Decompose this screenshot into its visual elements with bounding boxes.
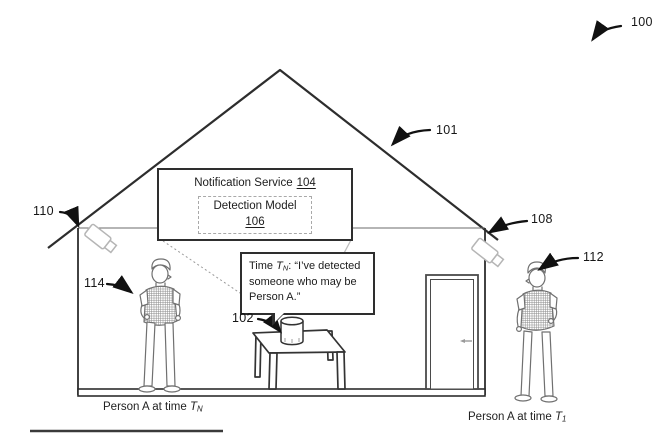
bubble-time-var: T	[276, 260, 283, 272]
arrow-108	[490, 221, 527, 232]
ref-label-112: 112	[583, 250, 604, 264]
ref-104: 104	[297, 177, 316, 189]
notification-service-text: Notification Service	[194, 177, 292, 189]
arrow-101	[393, 130, 430, 144]
speech-bubble-tail-fill	[275, 313, 284, 322]
caption-person-a-t1: Person A at time T1	[468, 411, 566, 423]
caption-left-var: T	[190, 401, 197, 413]
ref-label-101: 101	[436, 123, 458, 137]
notification-service-label: Notification Service104	[159, 177, 351, 189]
ref-label-102: 102	[232, 311, 254, 325]
detection-model-text: Detection Model	[199, 199, 311, 215]
ref-label-108: 108	[531, 212, 553, 226]
detection-model-box: Detection Model 106	[198, 196, 312, 234]
bubble-text: Time	[249, 260, 276, 272]
arrow-110	[60, 212, 78, 225]
patent-figure: Notification Service104 Detection Model …	[0, 0, 662, 436]
speech-bubble: Time TN: “I’ve detected someone who may …	[240, 252, 375, 315]
caption-person-a-tn: Person A at time TN	[103, 401, 203, 413]
door	[426, 275, 478, 389]
vest	[521, 290, 554, 330]
arrow-114	[107, 284, 131, 292]
person-inside	[139, 259, 180, 392]
caption-left-sub: N	[197, 404, 203, 413]
security-camera-right-icon	[471, 238, 505, 269]
notification-service-box: Notification Service104 Detection Model …	[157, 168, 353, 241]
arrow-100	[593, 26, 621, 39]
caption-right-sub: 1	[562, 414, 566, 423]
ref-label-100: 100	[631, 15, 653, 29]
ref-label-110: 110	[33, 204, 54, 218]
caption-left-text: Person A at time	[103, 401, 190, 413]
vest	[144, 286, 177, 325]
ref-label-114: 114	[84, 276, 105, 290]
person-outside	[515, 262, 557, 402]
ref-106: 106	[199, 215, 311, 231]
caption-right-text: Person A at time	[468, 411, 555, 423]
caption-right-var: T	[555, 411, 562, 423]
